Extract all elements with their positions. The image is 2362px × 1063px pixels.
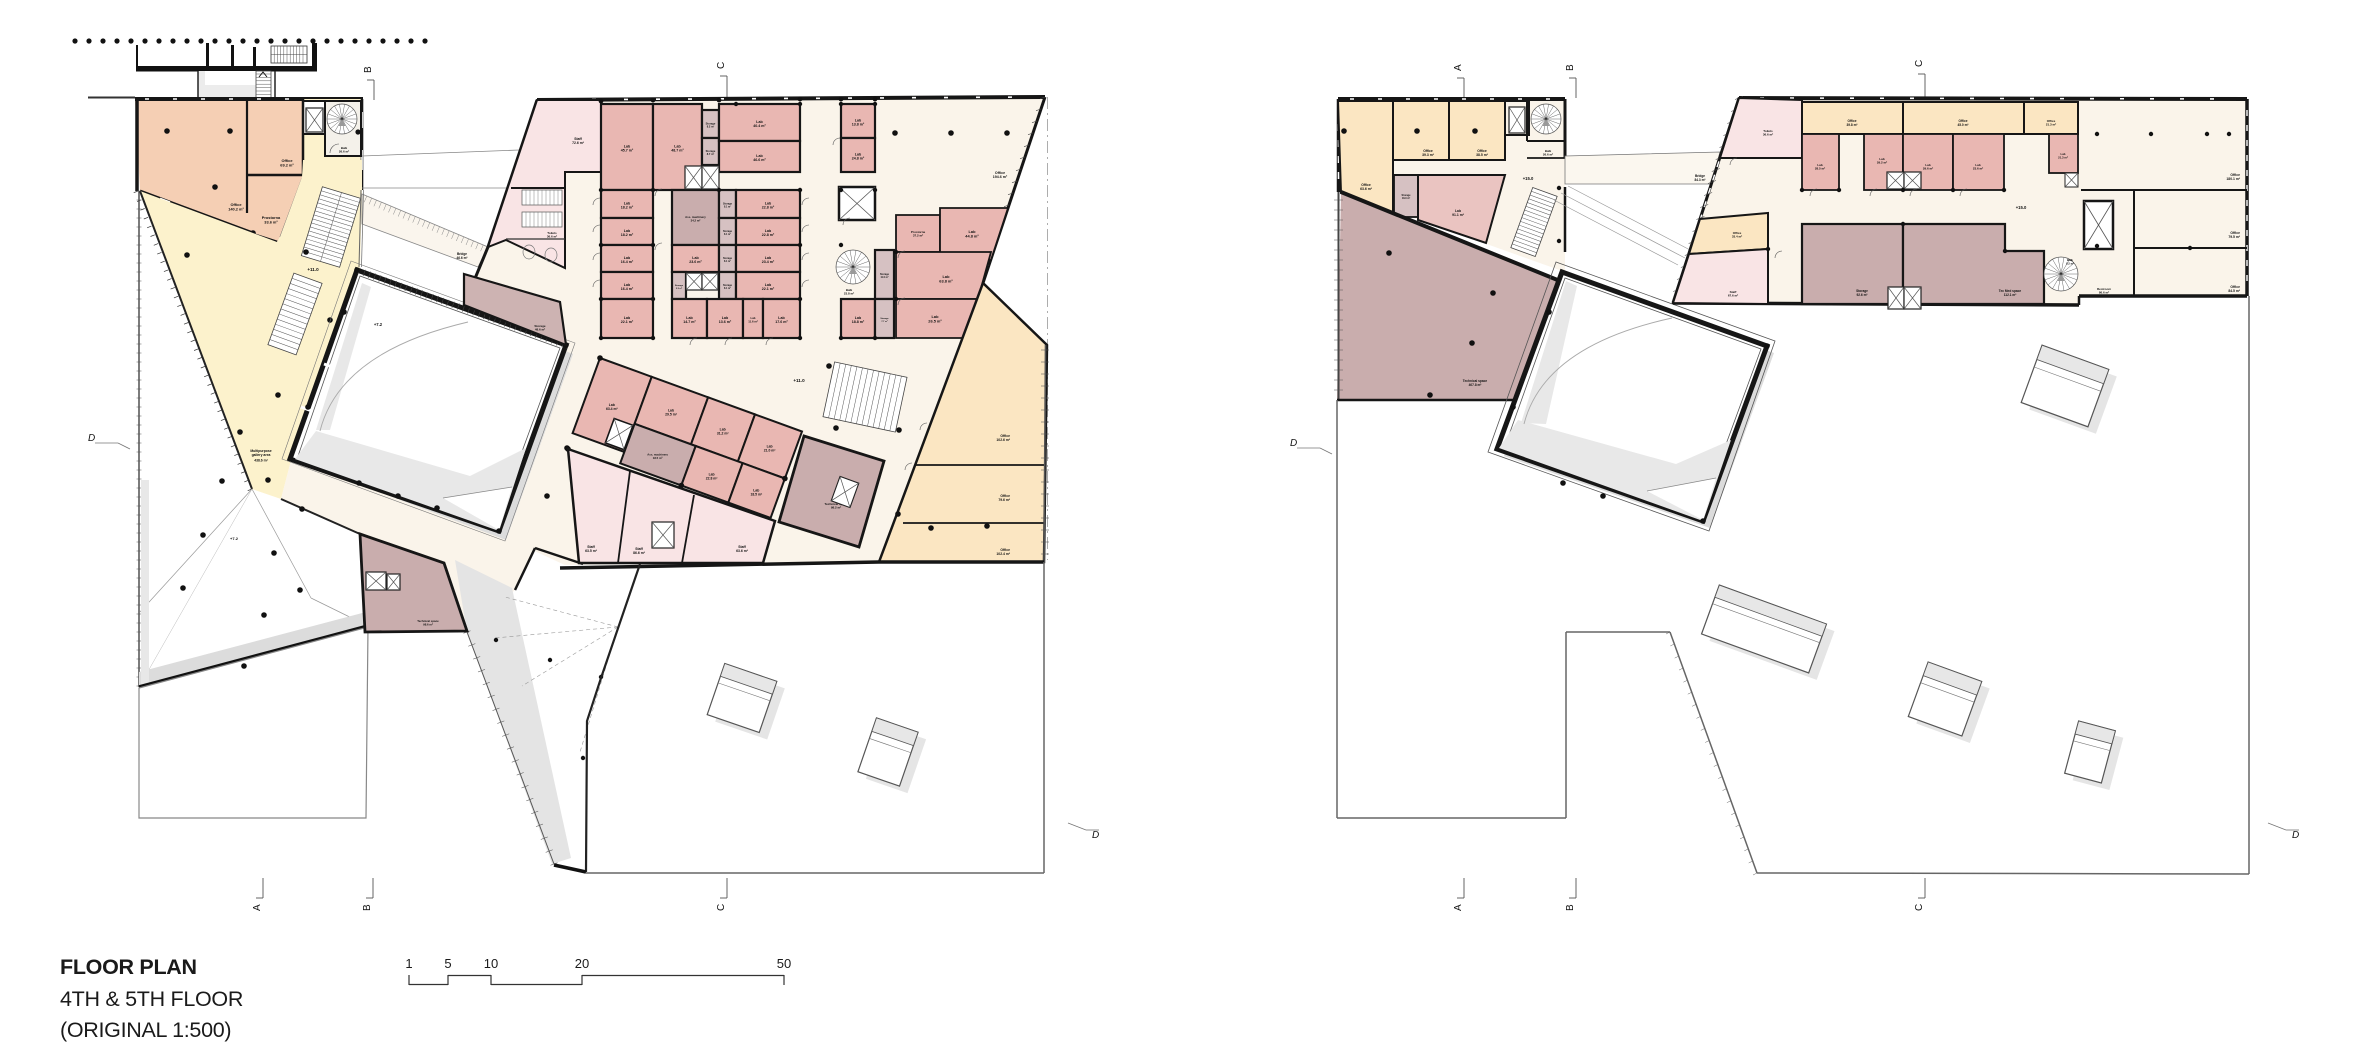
- svg-text:Storage11.0 m²: Storage11.0 m²: [880, 273, 890, 279]
- svg-text:Office79.6 m²: Office79.6 m²: [998, 494, 1011, 502]
- svg-text:4TH & 5TH FLOOR: 4TH & 5TH FLOOR: [60, 987, 243, 1011]
- svg-text:Bridge84.3 m²: Bridge84.3 m²: [1695, 174, 1706, 182]
- svg-text:5: 5: [444, 956, 451, 971]
- svg-text:438.6 m²: 438.6 m²: [254, 458, 268, 462]
- svg-text:A: A: [1453, 904, 1464, 911]
- svg-text:C: C: [716, 62, 727, 69]
- svg-text:Bridge46.6 m²: Bridge46.6 m²: [457, 252, 468, 260]
- svg-text:Office33.4 m²: Office33.4 m²: [1732, 231, 1742, 239]
- svg-text:Toilets36.6 m²: Toilets36.6 m²: [1763, 129, 1773, 137]
- svg-text:Storage18.9 m²: Storage18.9 m²: [1402, 194, 1412, 200]
- svg-text:+7.2: +7.2: [230, 536, 239, 541]
- svg-text:D: D: [88, 433, 95, 444]
- svg-text:A: A: [252, 904, 263, 911]
- svg-text:1: 1: [405, 956, 412, 971]
- svg-text:Storage92.6 m²: Storage92.6 m²: [1856, 289, 1868, 297]
- svg-text:Balk9.2 m²: Balk9.2 m²: [2066, 258, 2074, 265]
- svg-text:D: D: [1092, 830, 1099, 841]
- svg-text:20: 20: [575, 956, 589, 971]
- svg-text:+11.0: +11.0: [793, 378, 805, 383]
- svg-text:Office45.0 m²: Office45.0 m²: [1958, 119, 1969, 127]
- svg-text:+7.2: +7.2: [374, 322, 383, 327]
- svg-text:Office39.8 m²: Office39.8 m²: [1847, 119, 1858, 127]
- svg-text:(ORIGINAL 1:500): (ORIGINAL 1:500): [60, 1018, 231, 1042]
- svg-text:Office69.2 m²: Office69.2 m²: [280, 158, 294, 168]
- svg-text:Storage48.6 m²: Storage48.6 m²: [534, 324, 546, 332]
- svg-text:10: 10: [484, 956, 498, 971]
- svg-text:A: A: [1453, 64, 1464, 71]
- svg-text:B: B: [362, 904, 373, 911]
- svg-text:50: 50: [777, 956, 791, 971]
- svg-text:Office21.3 m²: Office21.3 m²: [2046, 119, 2056, 127]
- svg-text:B: B: [1565, 904, 1576, 911]
- svg-text:B: B: [363, 66, 374, 73]
- svg-text:FLOOR PLAN: FLOOR PLAN: [60, 955, 197, 979]
- svg-text:Office79.5 m²: Office79.5 m²: [2228, 231, 2241, 239]
- svg-text:+15.0: +15.0: [2016, 205, 2027, 210]
- svg-text:D: D: [2292, 830, 2299, 841]
- svg-text:+11.0: +11.0: [307, 267, 319, 272]
- svg-text:Multipurposegallery area: Multipurposegallery area: [250, 449, 271, 457]
- svg-text:C: C: [1914, 904, 1925, 911]
- svg-text:+15.0: +15.0: [1523, 176, 1534, 181]
- svg-text:Toilets36.6 m²: Toilets36.6 m²: [547, 231, 557, 239]
- svg-text:D: D: [1290, 438, 1297, 449]
- svg-text:B: B: [1565, 64, 1576, 71]
- svg-text:C: C: [1914, 60, 1925, 67]
- svg-text:C: C: [716, 904, 727, 911]
- svg-text:Office84.5 m²: Office84.5 m²: [2228, 285, 2241, 293]
